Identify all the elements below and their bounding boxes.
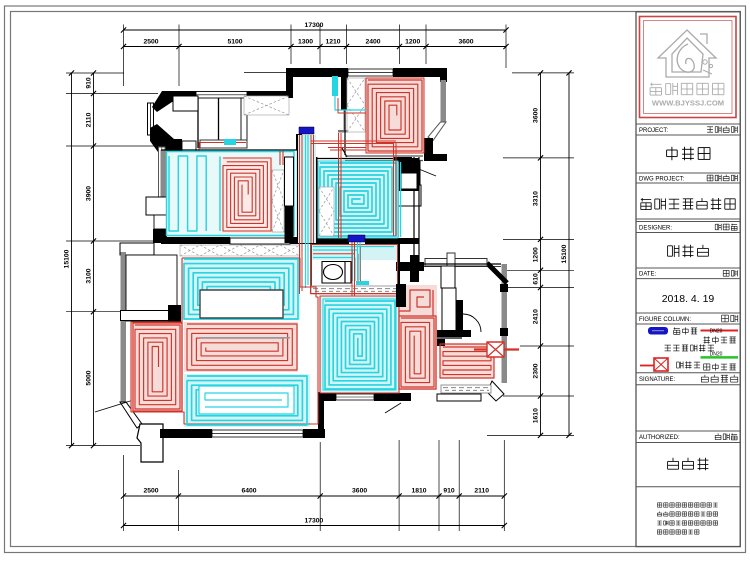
svg-text:15100: 15100	[64, 249, 71, 268]
svg-text:610: 610	[533, 273, 540, 285]
svg-text:15100: 15100	[561, 244, 568, 263]
svg-text:DATE:: DATE:	[639, 272, 657, 278]
svg-text:1610: 1610	[533, 408, 540, 423]
svg-text:3600: 3600	[458, 39, 473, 46]
svg-text:2400: 2400	[365, 39, 380, 46]
svg-text:5000: 5000	[86, 370, 93, 385]
svg-text:2018. 4. 19: 2018. 4. 19	[662, 293, 715, 305]
svg-text:1210: 1210	[325, 39, 340, 46]
svg-text:3600: 3600	[533, 108, 540, 123]
svg-text:1200: 1200	[533, 247, 540, 262]
svg-text:3900: 3900	[86, 186, 93, 201]
svg-text:2300: 2300	[533, 363, 540, 378]
svg-text:PROJECT:: PROJECT:	[639, 128, 668, 134]
svg-text:WWW.BJYSSJ.COM: WWW.BJYSSJ.COM	[652, 99, 724, 108]
svg-text:DWG PROJECT:: DWG PROJECT:	[639, 176, 685, 182]
svg-text:3310: 3310	[533, 191, 540, 206]
svg-text:DN20: DN20	[710, 352, 723, 358]
svg-text:1300: 1300	[298, 39, 313, 46]
svg-text:17300: 17300	[304, 518, 323, 525]
svg-text:DESIGNER:: DESIGNER:	[639, 225, 672, 231]
svg-text:2110: 2110	[86, 112, 93, 127]
svg-text:1200: 1200	[405, 39, 420, 46]
svg-text:3600: 3600	[352, 488, 367, 495]
svg-text:1810: 1810	[411, 488, 426, 495]
svg-text:6400: 6400	[241, 488, 256, 495]
svg-text:2410: 2410	[533, 309, 540, 324]
svg-text:2110: 2110	[474, 488, 489, 495]
svg-text:2500: 2500	[143, 488, 158, 495]
svg-text:AUTHORIZED:: AUTHORIZED:	[639, 435, 680, 441]
svg-text:SIGNATURE:: SIGNATURE:	[639, 377, 676, 383]
svg-text:5100: 5100	[227, 39, 242, 46]
svg-text:3100: 3100	[86, 268, 93, 283]
svg-text:910: 910	[443, 488, 455, 495]
svg-text:17300: 17300	[305, 22, 324, 29]
svg-text:FIGURE COLUMN:: FIGURE COLUMN:	[639, 317, 691, 323]
svg-text:2500: 2500	[143, 39, 158, 46]
svg-text:910: 910	[86, 77, 93, 89]
svg-text:DN20: DN20	[710, 329, 723, 335]
